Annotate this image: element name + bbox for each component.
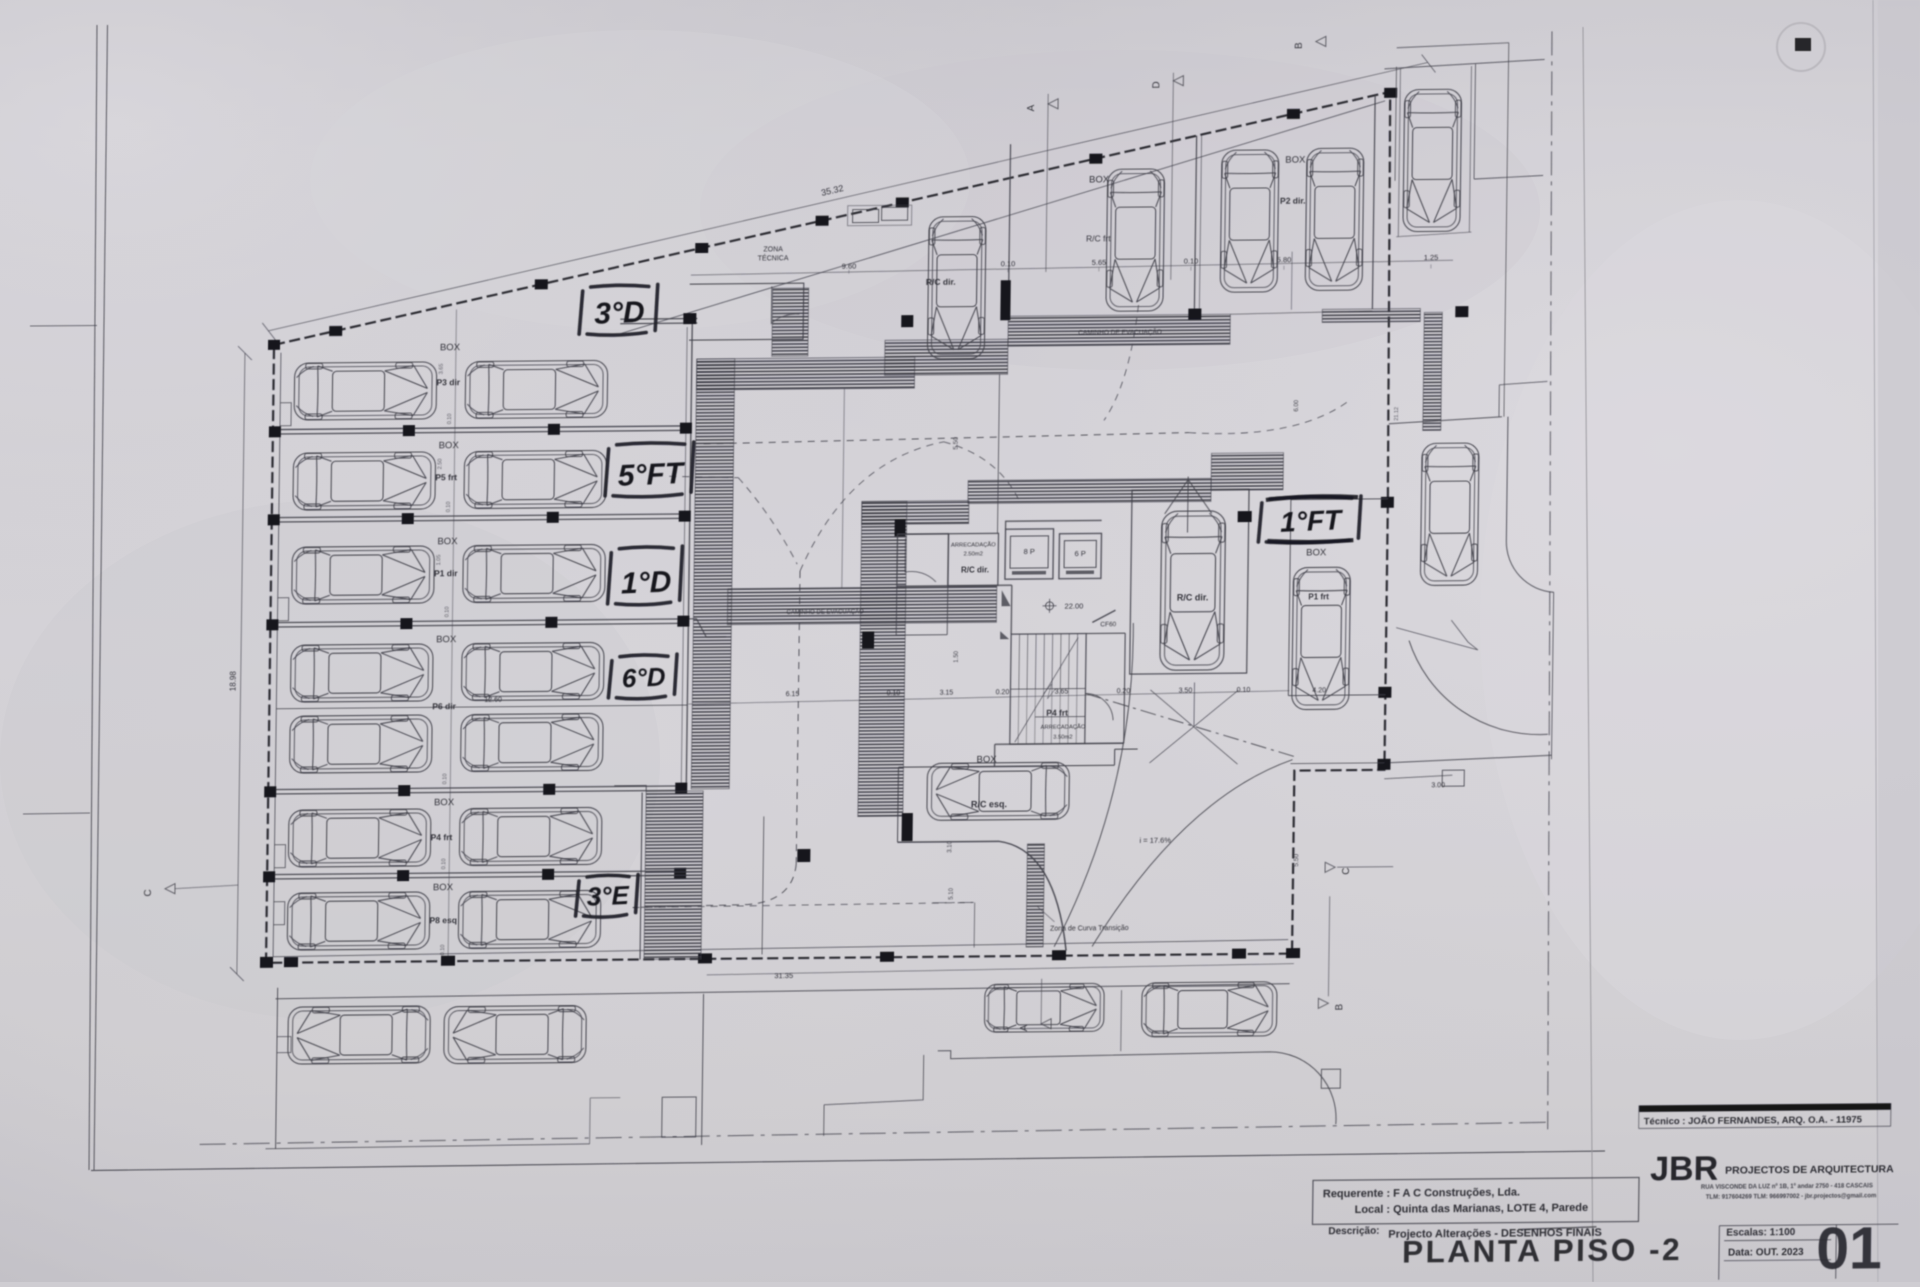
svg-text:CF60: CF60 <box>1100 621 1116 628</box>
svg-text:1.25: 1.25 <box>1424 253 1439 262</box>
svg-text:0.10: 0.10 <box>441 858 447 869</box>
svg-text:0.10: 0.10 <box>1001 259 1016 268</box>
svg-text:BOX: BOX <box>439 440 460 451</box>
svg-text:0.10: 0.10 <box>887 690 901 697</box>
svg-text:C: C <box>143 889 154 896</box>
svg-text:R/C dir.: R/C dir. <box>926 277 956 287</box>
svg-text:0.10: 0.10 <box>1237 687 1251 694</box>
svg-text:BOX: BOX <box>976 754 997 765</box>
svg-text:1°D: 1°D <box>621 565 672 600</box>
svg-text:Data: OUT. 2023: Data: OUT. 2023 <box>1728 1247 1804 1259</box>
svg-text:Descrição:: Descrição: <box>1328 1226 1379 1237</box>
svg-text:PROJECTOS DE ARQUITECTURA: PROJECTOS DE ARQUITECTURA <box>1725 1163 1894 1177</box>
svg-text:JBR: JBR <box>1650 1150 1719 1189</box>
svg-text:2.50m2: 2.50m2 <box>963 551 982 557</box>
svg-text:Técnico : JOÃO FERNANDES, ARQ.: Técnico : JOÃO FERNANDES, ARQ. O.A. - 11… <box>1644 1114 1863 1127</box>
svg-text:R/C dir.: R/C dir. <box>1177 592 1209 602</box>
svg-text:P1 frt: P1 frt <box>1308 592 1329 601</box>
svg-text:6.00: 6.00 <box>1294 399 1300 411</box>
svg-text:2.50: 2.50 <box>437 459 443 470</box>
svg-text:5.50: 5.50 <box>953 437 960 450</box>
svg-text:0.10: 0.10 <box>442 773 448 784</box>
svg-text:R/C dir.: R/C dir. <box>961 565 989 574</box>
svg-text:0.10: 0.10 <box>446 501 452 512</box>
svg-text:Escalas: 1:100: Escalas: 1:100 <box>1726 1227 1796 1239</box>
svg-text:0.10: 0.10 <box>1184 256 1199 265</box>
svg-text:0.20: 0.20 <box>1117 688 1131 695</box>
svg-text:3.10: 3.10 <box>947 840 953 852</box>
svg-text:01: 01 <box>1816 1215 1882 1282</box>
svg-text:R/C frt: R/C frt <box>1086 233 1111 243</box>
svg-text:CAMINHO DE EVACUAÇÃO: CAMINHO DE EVACUAÇÃO <box>786 608 864 616</box>
svg-text:3.50: 3.50 <box>1179 688 1193 695</box>
svg-text:6 P: 6 P <box>1075 549 1086 558</box>
svg-text:4.20: 4.20 <box>1312 687 1326 694</box>
svg-text:3°D: 3°D <box>594 296 645 331</box>
svg-text:31.35: 31.35 <box>774 971 793 980</box>
svg-text:8 P: 8 P <box>1024 547 1035 556</box>
svg-text:Requerente : F A C Construçõe: Requerente : F A C Construções, Lda. <box>1323 1187 1520 1201</box>
svg-text:BOX: BOX <box>1285 155 1306 166</box>
svg-text:BOX: BOX <box>440 342 461 353</box>
svg-text:18.98: 18.98 <box>229 671 238 692</box>
svg-text:0.20: 0.20 <box>996 689 1010 696</box>
svg-text:P2 dir.: P2 dir. <box>1280 196 1306 206</box>
svg-text:P6 dir: P6 dir <box>432 701 456 711</box>
svg-text:6°D: 6°D <box>622 662 667 694</box>
svg-text:3.50m2: 3.50m2 <box>1053 735 1072 741</box>
svg-text:A: A <box>1019 1024 1030 1031</box>
svg-text:5°FT: 5°FT <box>617 457 686 493</box>
svg-text:C: C <box>1341 867 1352 874</box>
svg-text:R/C esq.: R/C esq. <box>971 799 1007 809</box>
svg-text:B: B <box>1334 1003 1345 1010</box>
svg-text:3.00: 3.00 <box>1431 782 1445 789</box>
svg-text:1.50: 1.50 <box>954 650 960 662</box>
svg-text:3.65: 3.65 <box>439 364 445 375</box>
svg-text:i = 17.6%: i = 17.6% <box>1139 836 1171 845</box>
svg-text:BOX: BOX <box>1306 547 1327 558</box>
svg-text:TÉCNICA: TÉCNICA <box>758 253 789 262</box>
svg-text:BOX: BOX <box>433 882 454 893</box>
svg-text:5.80: 5.80 <box>1277 255 1292 264</box>
svg-text:ZONA: ZONA <box>763 246 783 253</box>
svg-text:5.65: 5.65 <box>1092 258 1107 267</box>
svg-text:22.00: 22.00 <box>1064 602 1083 611</box>
svg-text:0.10: 0.10 <box>440 944 446 955</box>
svg-text:A: A <box>1026 104 1037 111</box>
svg-text:Zona de Curva Transição: Zona de Curva Transição <box>1050 925 1129 933</box>
svg-text:P5 frt: P5 frt <box>435 472 457 482</box>
svg-text:5.50: 5.50 <box>1293 853 1300 866</box>
svg-text:P1 dir: P1 dir <box>434 568 458 578</box>
svg-text:P4 frt: P4 frt <box>431 832 453 842</box>
svg-text:ARRECADAÇÃO: ARRECADAÇÃO <box>951 541 996 548</box>
svg-text:3.65: 3.65 <box>1055 689 1069 696</box>
svg-text:ARRECADAÇÃO: ARRECADAÇÃO <box>1041 723 1086 730</box>
svg-text:1.05: 1.05 <box>436 555 442 566</box>
svg-text:1°FT: 1°FT <box>1280 504 1345 538</box>
svg-text:21.12: 21.12 <box>1394 407 1400 421</box>
svg-text:9.60: 9.60 <box>842 262 857 271</box>
svg-text:3.15: 3.15 <box>940 690 954 697</box>
svg-text:D: D <box>1151 81 1162 88</box>
svg-text:PLANTA PISO -2: PLANTA PISO -2 <box>1402 1231 1682 1270</box>
svg-text:0.10: 0.10 <box>444 606 450 617</box>
svg-text:BOX: BOX <box>436 634 457 645</box>
svg-text:P8 esq: P8 esq <box>429 915 457 925</box>
svg-text:B: B <box>1294 42 1305 49</box>
svg-text:BOX: BOX <box>434 797 455 808</box>
svg-text:BOX: BOX <box>437 536 458 547</box>
svg-text:0.10: 0.10 <box>447 413 453 424</box>
svg-text:5.10: 5.10 <box>949 887 955 899</box>
svg-text:BOX: BOX <box>1089 174 1110 185</box>
svg-text:12.60: 12.60 <box>484 697 502 704</box>
svg-text:Local : Quinta das Marianas, L: Local : Quinta das Marianas, LOTE 4, Par… <box>1355 1202 1589 1216</box>
svg-text:6.15: 6.15 <box>786 691 800 698</box>
svg-text:3°E: 3°E <box>586 880 630 912</box>
svg-text:P3 dir: P3 dir <box>436 377 460 387</box>
